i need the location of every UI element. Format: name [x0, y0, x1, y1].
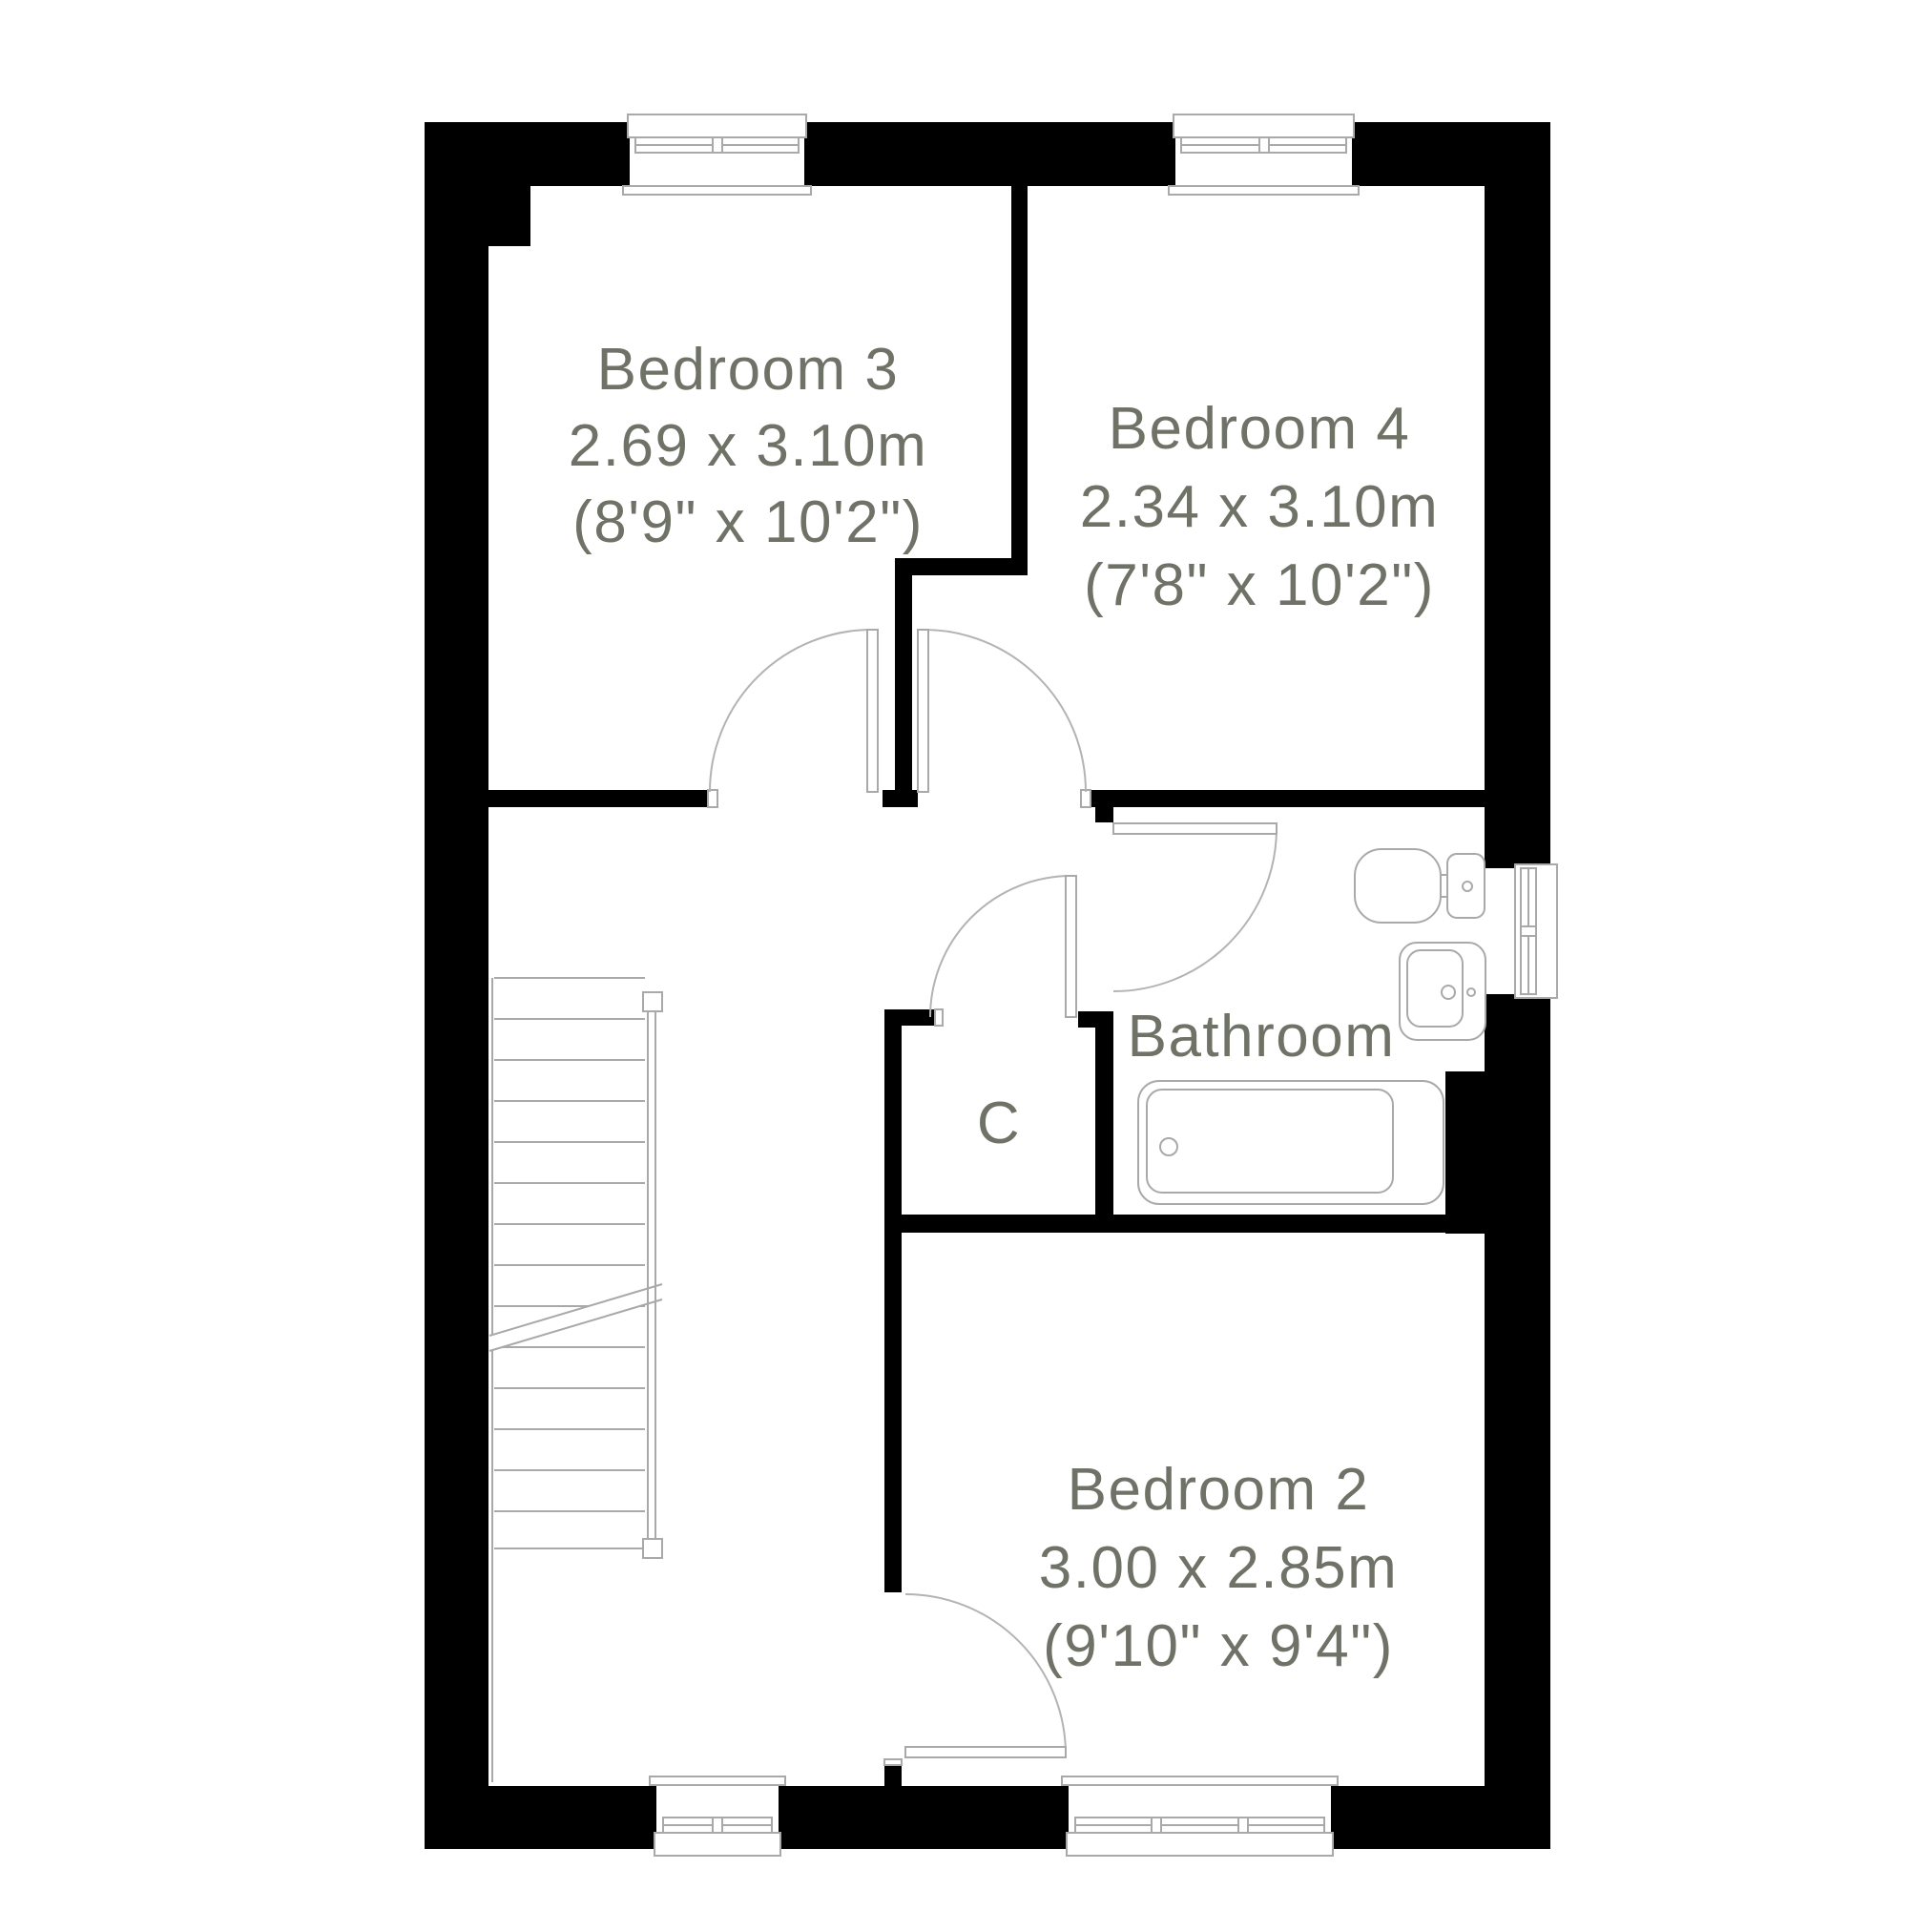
cupboard-label: C — [977, 1091, 1021, 1156]
staircase — [489, 978, 662, 1782]
room-name: C — [977, 1091, 1021, 1156]
wall-bottom — [425, 1786, 1550, 1849]
door-jamb — [884, 1759, 902, 1765]
window-mullion — [1238, 1818, 1248, 1833]
room-dimensions-metric: 3.00 x 2.85m — [1039, 1535, 1398, 1601]
window-sill — [1169, 186, 1359, 195]
room-dimensions-imperial: (9'10" x 9'4") — [1043, 1613, 1394, 1679]
toilet-cistern — [1447, 854, 1485, 918]
wall-right-mid-block — [1445, 1071, 1488, 1234]
door-swing-arc — [710, 630, 872, 792]
door-leaf — [1113, 823, 1277, 834]
door-leaf — [867, 630, 878, 792]
wall-bathroom-left-stub — [1095, 807, 1113, 822]
toilet-bowl — [1355, 849, 1441, 923]
window-bathroom — [1485, 864, 1557, 998]
floor-plan-canvas: Bedroom 3 2.69 x 3.10m (8'9" x 10'2") Be… — [0, 0, 1932, 1932]
door-jamb — [935, 1009, 943, 1026]
door-swing-arc — [905, 1594, 1066, 1755]
window-bedroom3 — [623, 114, 811, 195]
stair-break-line — [489, 1284, 662, 1336]
window-outer-frame — [1067, 1833, 1333, 1856]
wall-top — [425, 122, 1550, 186]
window-outer-frame — [654, 1833, 780, 1856]
bathroom-label: Bathroom — [1128, 1004, 1396, 1070]
door-bedroom3 — [708, 630, 883, 807]
room-name: Bathroom — [1128, 1004, 1396, 1070]
door-leaf — [905, 1747, 1066, 1757]
bathtub-icon — [1138, 1081, 1444, 1204]
wall-bed3-bed4-divider-upper — [1011, 186, 1028, 558]
door-swing-arc — [924, 630, 1086, 792]
bedroom2-label: Bedroom 2 3.00 x 2.85m (9'10" x 9'4") — [1039, 1457, 1398, 1679]
window-sill — [623, 186, 811, 195]
wall-top-left-notch — [425, 122, 530, 246]
window-bedroom2 — [1062, 1776, 1338, 1856]
door-cupboard — [930, 876, 1076, 1026]
stair-break-line — [489, 1299, 662, 1351]
wall-bedroom2-left-stub — [884, 1765, 902, 1786]
door-jamb — [708, 790, 717, 807]
window-outer-frame — [1174, 114, 1354, 137]
window-sill — [1062, 1776, 1338, 1785]
wall-bathroom-left-foot — [1078, 1011, 1095, 1028]
window-mullion — [1259, 137, 1269, 153]
door-leaf — [1066, 876, 1076, 1017]
stair-break-mask — [489, 1284, 662, 1351]
door-swing-arc — [1113, 828, 1277, 991]
stair-newel-post-top — [643, 992, 662, 1011]
wall-bedroom2-top — [884, 1215, 1485, 1233]
door-swing-arc — [930, 876, 1071, 1017]
wall-cupboard-left — [884, 1009, 902, 1233]
wall-bedroom2-left — [884, 1233, 902, 1592]
door-bathroom — [1095, 822, 1277, 1011]
door-opening — [884, 1592, 902, 1759]
wall-bathroom-top — [1091, 790, 1485, 807]
wall-cupboard-top-stub — [884, 1009, 935, 1026]
room-dimensions-imperial: (7'8" x 10'2") — [1084, 552, 1435, 618]
room-name: Bedroom 2 — [1068, 1457, 1370, 1523]
room-dimensions-metric: 2.69 x 3.10m — [569, 413, 927, 479]
door-opening — [918, 790, 1091, 807]
wall-left — [425, 122, 488, 1849]
door-bedroom4 — [918, 630, 1091, 807]
door-jamb — [1081, 790, 1091, 807]
window-sill — [650, 1776, 785, 1785]
window-bedroom4 — [1169, 114, 1359, 195]
door-leaf — [918, 630, 928, 792]
wall-bathroom-left-lower — [1095, 1011, 1113, 1215]
toilet-icon — [1355, 849, 1485, 923]
window-mullion — [713, 137, 722, 153]
door-opening — [708, 790, 883, 807]
bedroom3-label: Bedroom 3 2.69 x 3.10m (8'9" x 10'2") — [569, 337, 927, 555]
room-name: Bedroom 4 — [1109, 396, 1411, 462]
wall-landing-stub — [883, 790, 918, 807]
window-landing — [650, 1776, 785, 1856]
stair-treads — [494, 978, 645, 1548]
bathtub-outer — [1138, 1081, 1444, 1204]
room-dimensions-imperial: (8'9" x 10'2") — [572, 489, 924, 555]
bedroom4-label: Bedroom 4 2.34 x 3.10m (7'8" x 10'2") — [1080, 396, 1439, 618]
wall-bed3-bed4-divider-jog — [895, 558, 1028, 575]
door-opening — [1095, 822, 1113, 1011]
wall-bed3-bed4-divider-lower — [895, 575, 912, 790]
window-mullion — [1152, 1818, 1161, 1833]
stair-newel-post-bottom — [643, 1539, 662, 1558]
room-dimensions-metric: 2.34 x 3.10m — [1080, 474, 1439, 540]
room-name: Bedroom 3 — [597, 337, 900, 403]
floor-plan-drawing: Bedroom 3 2.69 x 3.10m (8'9" x 10'2") Be… — [0, 0, 1932, 1932]
door-bedroom2 — [884, 1592, 1066, 1765]
door-opening — [935, 1009, 1073, 1026]
wall-bedroom3-bottom — [488, 790, 708, 807]
window-mullion — [1521, 926, 1536, 936]
window-outer-frame — [628, 114, 806, 137]
sink-icon — [1400, 943, 1485, 1040]
window-mullion — [713, 1818, 722, 1833]
